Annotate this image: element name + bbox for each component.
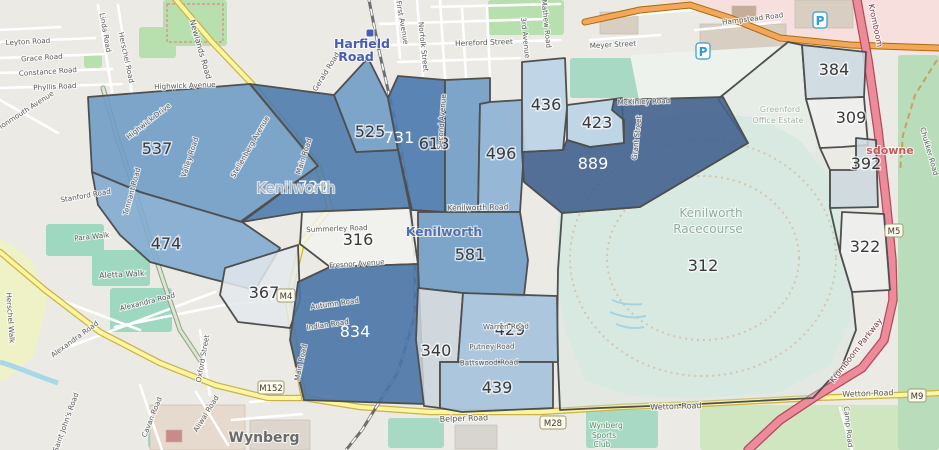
street-label: Putney Road (469, 342, 514, 352)
region-label-322: 322 (850, 237, 881, 256)
street-label: McKinley Road (618, 96, 671, 107)
region-label-423: 423 (582, 113, 613, 132)
road-shield-label-M152: M152 (259, 384, 283, 394)
street-label: Kenilworth Road (447, 202, 508, 212)
place-label: Club (594, 440, 611, 449)
place-label: Sports (592, 431, 616, 440)
region-label-340: 340 (421, 341, 452, 360)
street-label: Wetton Road (650, 401, 702, 412)
place-label: Kenilworth (679, 206, 742, 220)
building (455, 425, 497, 449)
road-shield-label-M9: M9 (911, 392, 924, 402)
region-label-889: 889 (578, 154, 609, 173)
street-label: Battswood Road (460, 357, 518, 367)
park-area (84, 54, 102, 68)
region-label-731: 731 (384, 128, 415, 147)
place-label: Kenilworth (406, 224, 483, 239)
building (166, 430, 182, 442)
place-label: Road (338, 49, 374, 64)
place-label: Racecourse (673, 222, 743, 236)
street-label: Warren Road (483, 322, 529, 332)
train-station-icon (366, 29, 374, 37)
region-label-474: 474 (151, 234, 182, 253)
place-label: Kenilworth (256, 179, 335, 197)
region-label-439: 439 (482, 378, 513, 397)
place-label: Greenford (760, 105, 800, 114)
region-label-367: 367 (249, 283, 280, 302)
street-label: Belper Road (439, 413, 488, 424)
parking-icon-letter: P (699, 45, 708, 59)
region-label-537: 537 (142, 139, 173, 158)
region-label-581: 581 (455, 245, 486, 264)
choropleth-map[interactable]: 3125377205257316184964364238893843093923… (0, 0, 939, 450)
park-area (388, 418, 444, 448)
region-label-436: 436 (531, 95, 562, 114)
region-label-496: 496 (486, 144, 517, 163)
road-shield-label-M4: M4 (280, 292, 293, 302)
region-label-525: 525 (355, 122, 386, 141)
region-label-384: 384 (819, 60, 850, 79)
region-label-316: 316 (343, 230, 374, 249)
place-label: Wynberg (229, 430, 300, 446)
place-label: Wynberg (589, 421, 623, 430)
region-label-309: 309 (836, 108, 867, 127)
map-canvas[interactable]: 3125377205257316184964364238893843093923… (0, 0, 939, 450)
road-shield-label-M5: M5 (888, 227, 901, 237)
place-label: sdowne (866, 144, 913, 157)
place-label: Office Estate (752, 116, 803, 125)
parking-icon-letter: P (816, 14, 825, 28)
road-shield-label-M28: M28 (544, 419, 562, 429)
street-label: Wetton Road (842, 388, 894, 399)
region-label-312: 312 (688, 256, 719, 275)
